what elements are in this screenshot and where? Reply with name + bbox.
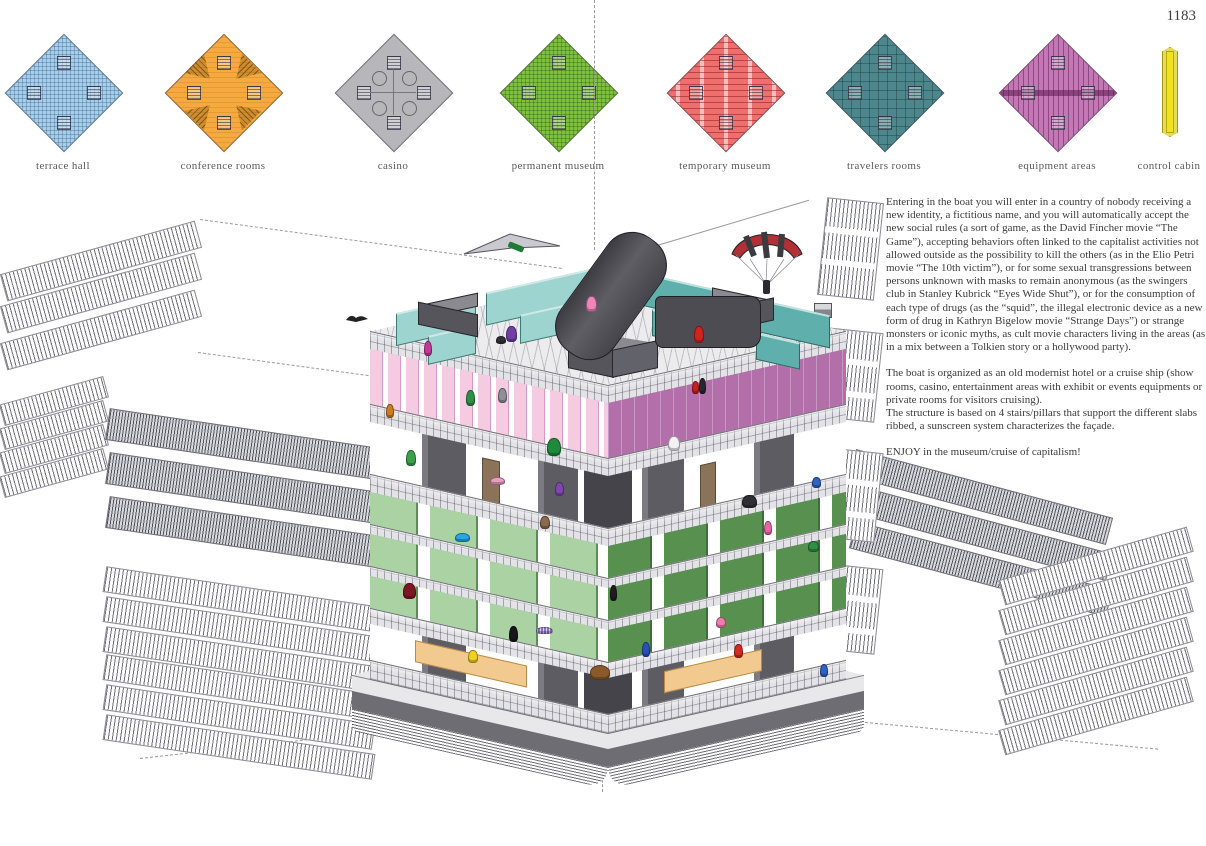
stair-core-square [187, 86, 201, 100]
parachutist-icon [726, 222, 808, 296]
figure-orange-monkey [386, 404, 394, 418]
figure-gray-arms-up [498, 388, 507, 403]
bird-icon [346, 313, 368, 323]
figure-red-runner [694, 326, 704, 343]
figure-pink-dancers [586, 296, 597, 312]
figure-striped-worm [536, 627, 553, 634]
figure-green-pointing [466, 390, 475, 406]
projection-line-left-mid [198, 352, 369, 376]
figure-masked-hero [406, 450, 416, 466]
stair-core-square [1021, 86, 1035, 100]
figure-blue-bird [455, 533, 470, 542]
figure-red-extinguisher [692, 381, 699, 394]
floor-plan-conference-rooms [165, 34, 284, 153]
stair-core-square [247, 86, 261, 100]
figure-purple-jumper [506, 326, 517, 342]
stair-core-square [1051, 56, 1065, 70]
stair-core-square [908, 86, 922, 100]
figure-green-crawler [808, 541, 819, 552]
roof-maze-back-left-walls [370, 0, 608, 792]
legend-item-terrace-hall: terrace hall [0, 28, 138, 180]
stair-core-square [217, 116, 231, 130]
figure-brown-sloth [540, 516, 550, 529]
figure-blue-visitor [642, 642, 650, 657]
figure-black-cloak [509, 626, 518, 642]
description-paragraph-2: The boat is organized as an old modernis… [886, 367, 1206, 407]
figure-red-visitor [734, 644, 743, 658]
stair-core-square [217, 56, 231, 70]
description-paragraph-3: The structure is based on 4 stairs/pilla… [886, 407, 1206, 433]
figure-pikachu [468, 650, 478, 663]
slide-ramp-base [655, 296, 761, 348]
figure-pink-spider [716, 617, 726, 628]
page-number: 1183 [1167, 8, 1196, 25]
description-paragraph-1: Entering in the boat you will enter in a… [886, 196, 1206, 354]
description-paragraph-4: ENJOY in the museum/cruise of capitalism… [886, 446, 1206, 459]
plan-pattern [5, 34, 124, 153]
figure-magenta-runner [424, 341, 432, 356]
stair-core-square [878, 116, 892, 130]
figure-purple-skater [555, 482, 564, 496]
figure-blue-guard [820, 664, 828, 677]
legend-item-control-cabin: control cabin [1094, 28, 1206, 180]
page: { "page": { "number": "1183" }, "legend"… [0, 0, 1206, 792]
figure-darkred-monster [403, 583, 416, 599]
figure-blue-hanging [812, 477, 821, 488]
stair-core-square [1081, 86, 1095, 100]
stair-core-square [878, 56, 892, 70]
stair-core-square [57, 56, 71, 70]
stair-core-square [27, 86, 41, 100]
figure-pink-lying [490, 477, 505, 485]
description-text: Entering in the boat you will enter in a… [886, 196, 1206, 473]
figure-pink-climber [764, 521, 772, 535]
figure-black-standing [699, 378, 706, 394]
figure-jabba [590, 665, 610, 680]
stair-core-square [87, 86, 101, 100]
figure-dark-trio [742, 495, 757, 508]
stair-core-square [1051, 116, 1065, 130]
figure-white-astronauts [668, 436, 680, 451]
figure-black-lurker [610, 585, 617, 601]
stair-core-square [57, 116, 71, 130]
figure-dark-bird-small [496, 336, 506, 344]
figure-hulk [547, 438, 561, 456]
hang-glider-icon [462, 226, 562, 266]
floor-plan-terrace-hall [5, 34, 124, 153]
legend-label-terrace-hall: terrace hall [0, 160, 138, 172]
legend-item-conference-rooms: conference rooms [148, 28, 298, 180]
plan-pattern [165, 34, 284, 153]
legend-label-control-cabin: control cabin [1094, 160, 1206, 172]
roof-maze-back-right-walls [608, 0, 846, 846]
legend-label-conference-rooms: conference rooms [148, 160, 298, 172]
floor-plan-rod-control-cabin [1162, 47, 1178, 137]
